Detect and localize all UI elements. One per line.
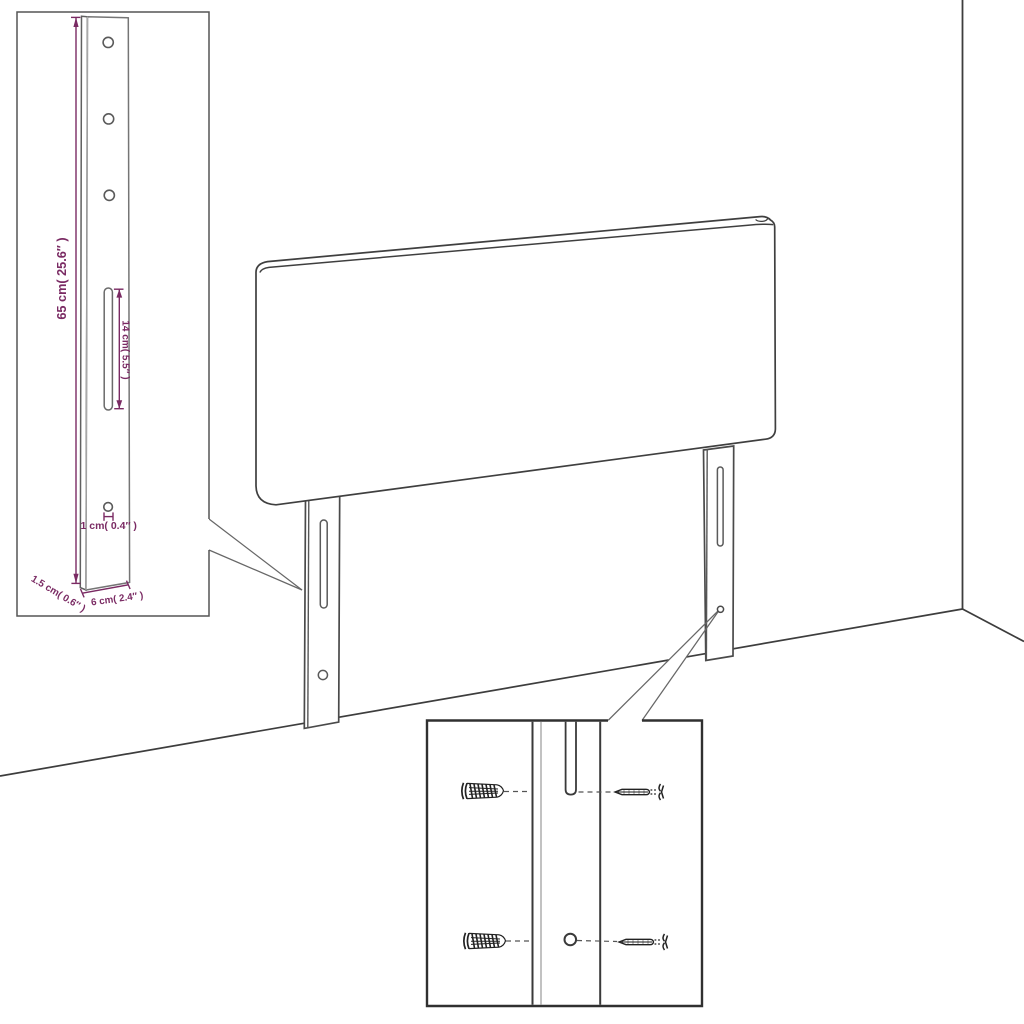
svg-text:1 cm( 0.4″ ): 1 cm( 0.4″ ) (81, 520, 137, 532)
svg-text:65 cm( 25.6″ ): 65 cm( 25.6″ ) (55, 237, 69, 319)
svg-text:14 cm( 5.5″ ): 14 cm( 5.5″ ) (119, 320, 130, 379)
